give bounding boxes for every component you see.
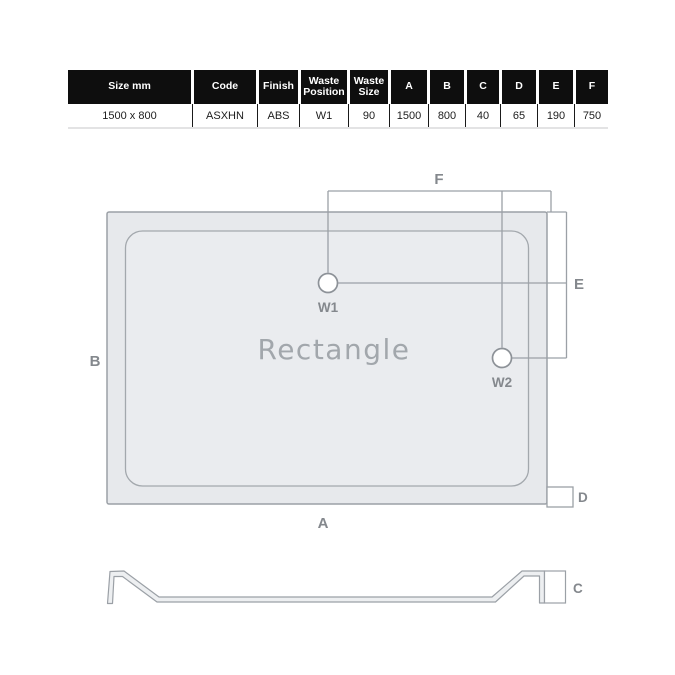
d-corner-detail-box (547, 487, 573, 507)
tray-diagram: Rectangle F E W1 W2 B A D C (0, 0, 675, 675)
product-spec-sheet: Size mm Code Finish Waste Position Waste… (0, 0, 675, 675)
waste-w2-label: W2 (492, 375, 512, 390)
e-dimension-label: E (574, 276, 584, 293)
waste-w2-circle (493, 349, 512, 368)
f-dimension-label: F (434, 171, 443, 188)
shape-name-label: Rectangle (258, 333, 411, 366)
tray-cross-section (108, 571, 545, 604)
c-dimension-label: C (573, 581, 583, 596)
d-dimension-label: D (578, 490, 588, 505)
c-height-box (545, 571, 566, 603)
a-dimension-label: A (318, 515, 329, 532)
waste-w1-circle (319, 274, 338, 293)
b-dimension-label: B (90, 353, 101, 370)
waste-w1-label: W1 (318, 300, 339, 315)
